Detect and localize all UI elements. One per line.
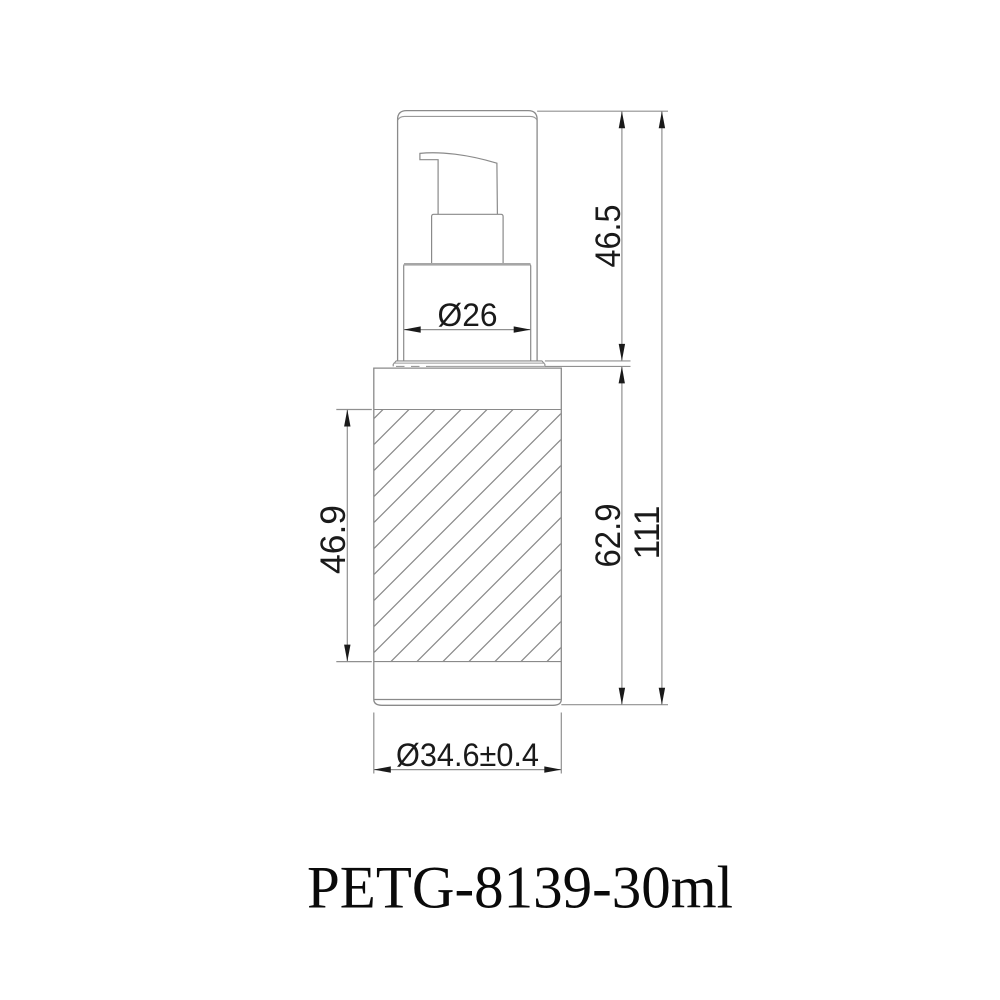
svg-text:PETG-8139-30ml: PETG-8139-30ml xyxy=(307,854,733,920)
svg-text:111: 111 xyxy=(627,506,667,560)
svg-text:46.9: 46.9 xyxy=(313,505,353,574)
svg-text:Ø34.6±0.4: Ø34.6±0.4 xyxy=(396,737,539,773)
svg-text:Ø26: Ø26 xyxy=(438,297,498,333)
svg-text:62.9: 62.9 xyxy=(588,504,628,568)
svg-text:46.5: 46.5 xyxy=(588,205,628,268)
